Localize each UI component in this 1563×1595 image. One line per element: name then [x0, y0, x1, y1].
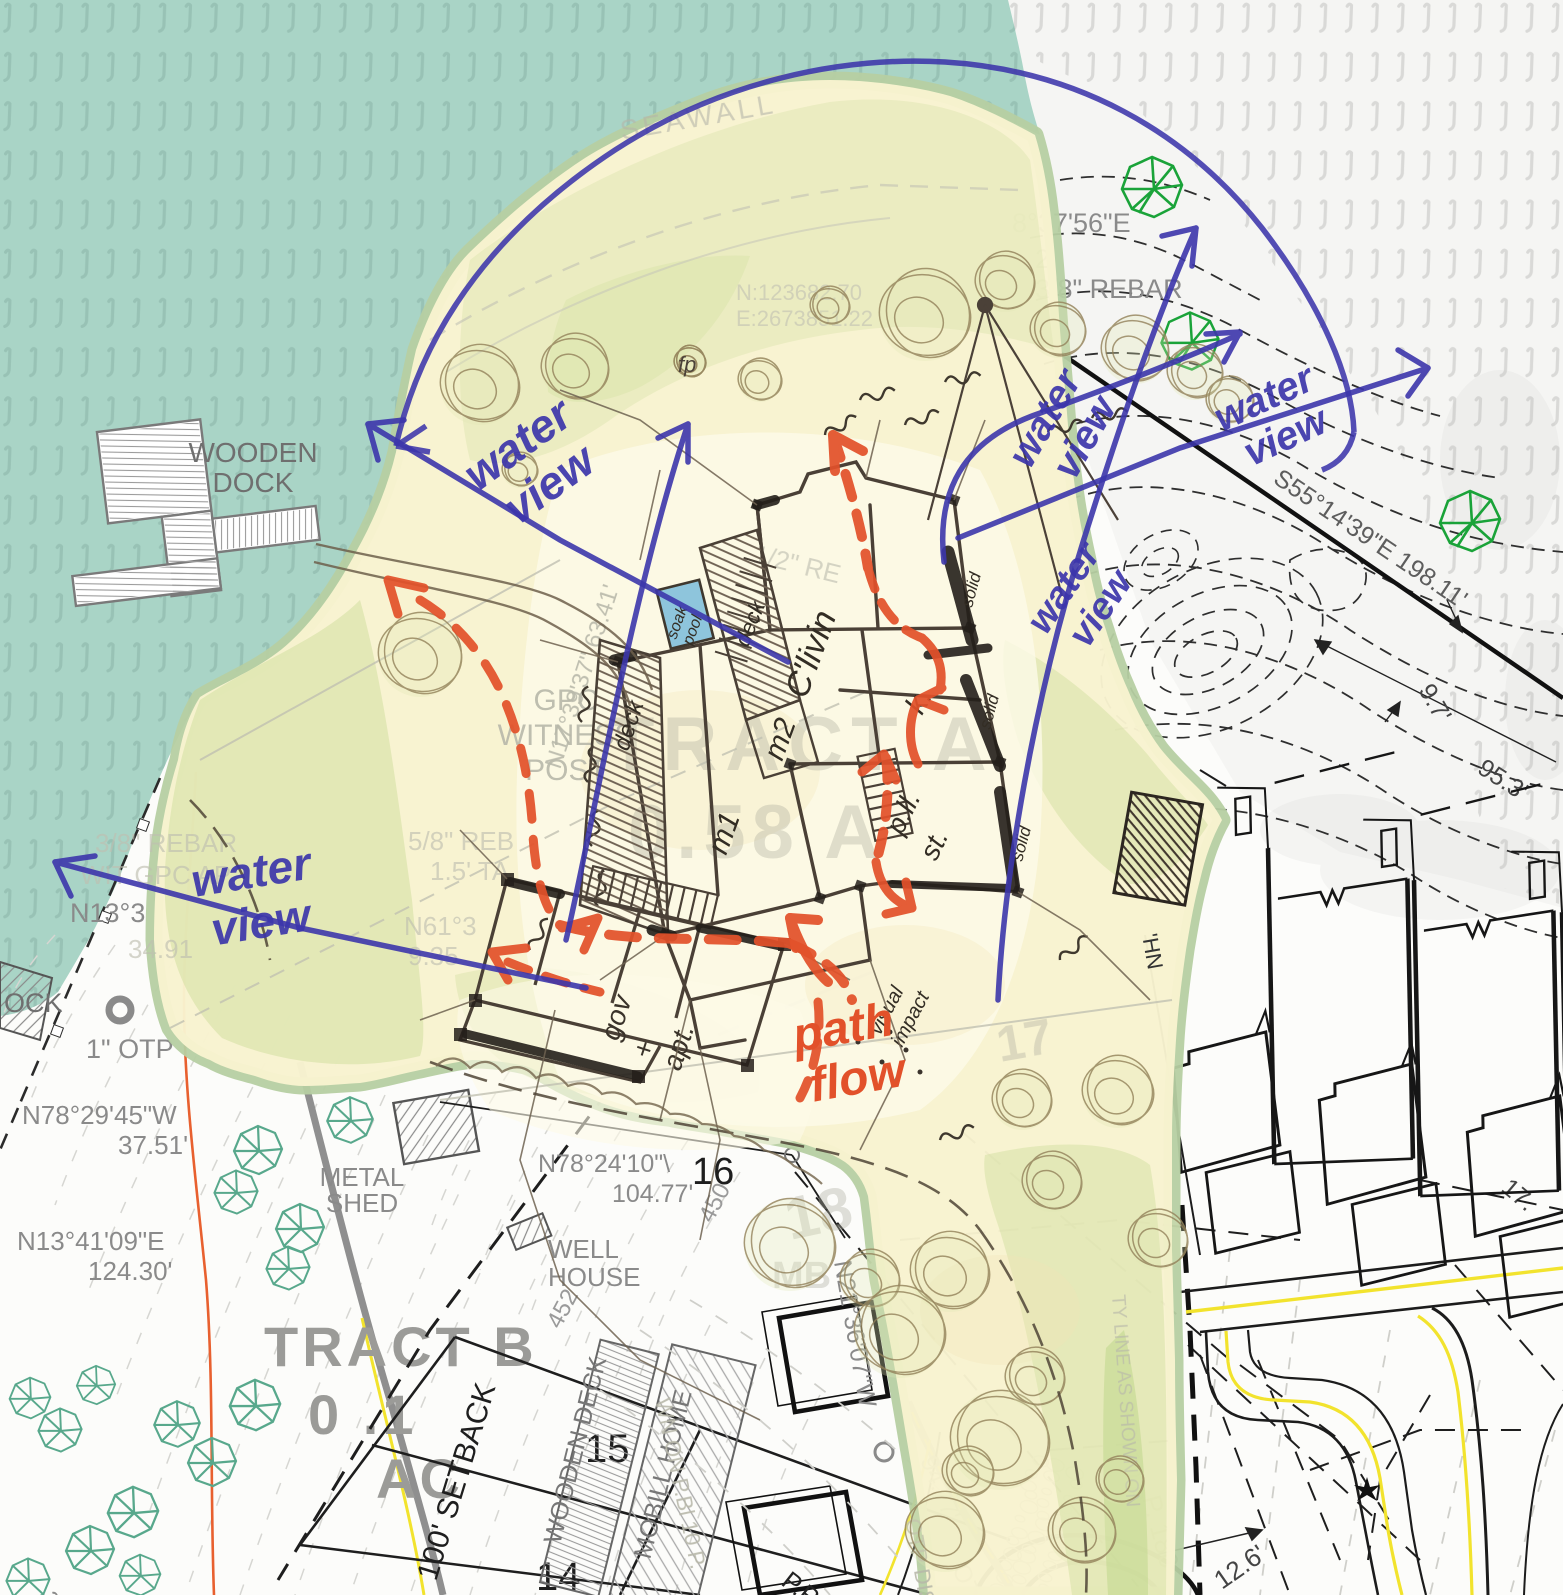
svg-text:DOCK: DOCK [213, 467, 294, 498]
svg-text:N13°41'09"E: N13°41'09"E [17, 1226, 164, 1256]
svg-text:TRACT A: TRACT A [608, 702, 995, 787]
svg-text:34.91: 34.91 [128, 934, 193, 964]
svg-text:N78°29'45"W: N78°29'45"W [22, 1100, 177, 1130]
svg-text:N78°24'10"\: N78°24'10"\ [538, 1150, 670, 1178]
svg-text:TRACT B: TRACT B [264, 1315, 538, 1378]
svg-text:1.5' TA: 1.5' TA [430, 856, 510, 886]
svg-text:WOODEN: WOODEN [188, 437, 317, 468]
svg-text:104.77': 104.77' [612, 1180, 693, 1208]
svg-text:0 .1: 0 .1 [308, 1383, 417, 1446]
svg-text:N61°3: N61°3 [404, 911, 477, 941]
svg-text:1" OTP: 1" OTP [86, 1034, 174, 1064]
svg-text:SHED: SHED [326, 1188, 398, 1218]
svg-text:fp: fp [678, 352, 696, 377]
svg-text:124.30': 124.30' [88, 1256, 173, 1286]
svg-text:WELL: WELL [548, 1234, 619, 1264]
svg-text:E:2673851.22: E:2673851.22 [736, 306, 873, 331]
svg-text:OCK: OCK [4, 988, 63, 1018]
svg-text:N13°3: N13°3 [70, 898, 145, 928]
svg-text:37.51': 37.51' [118, 1130, 188, 1160]
